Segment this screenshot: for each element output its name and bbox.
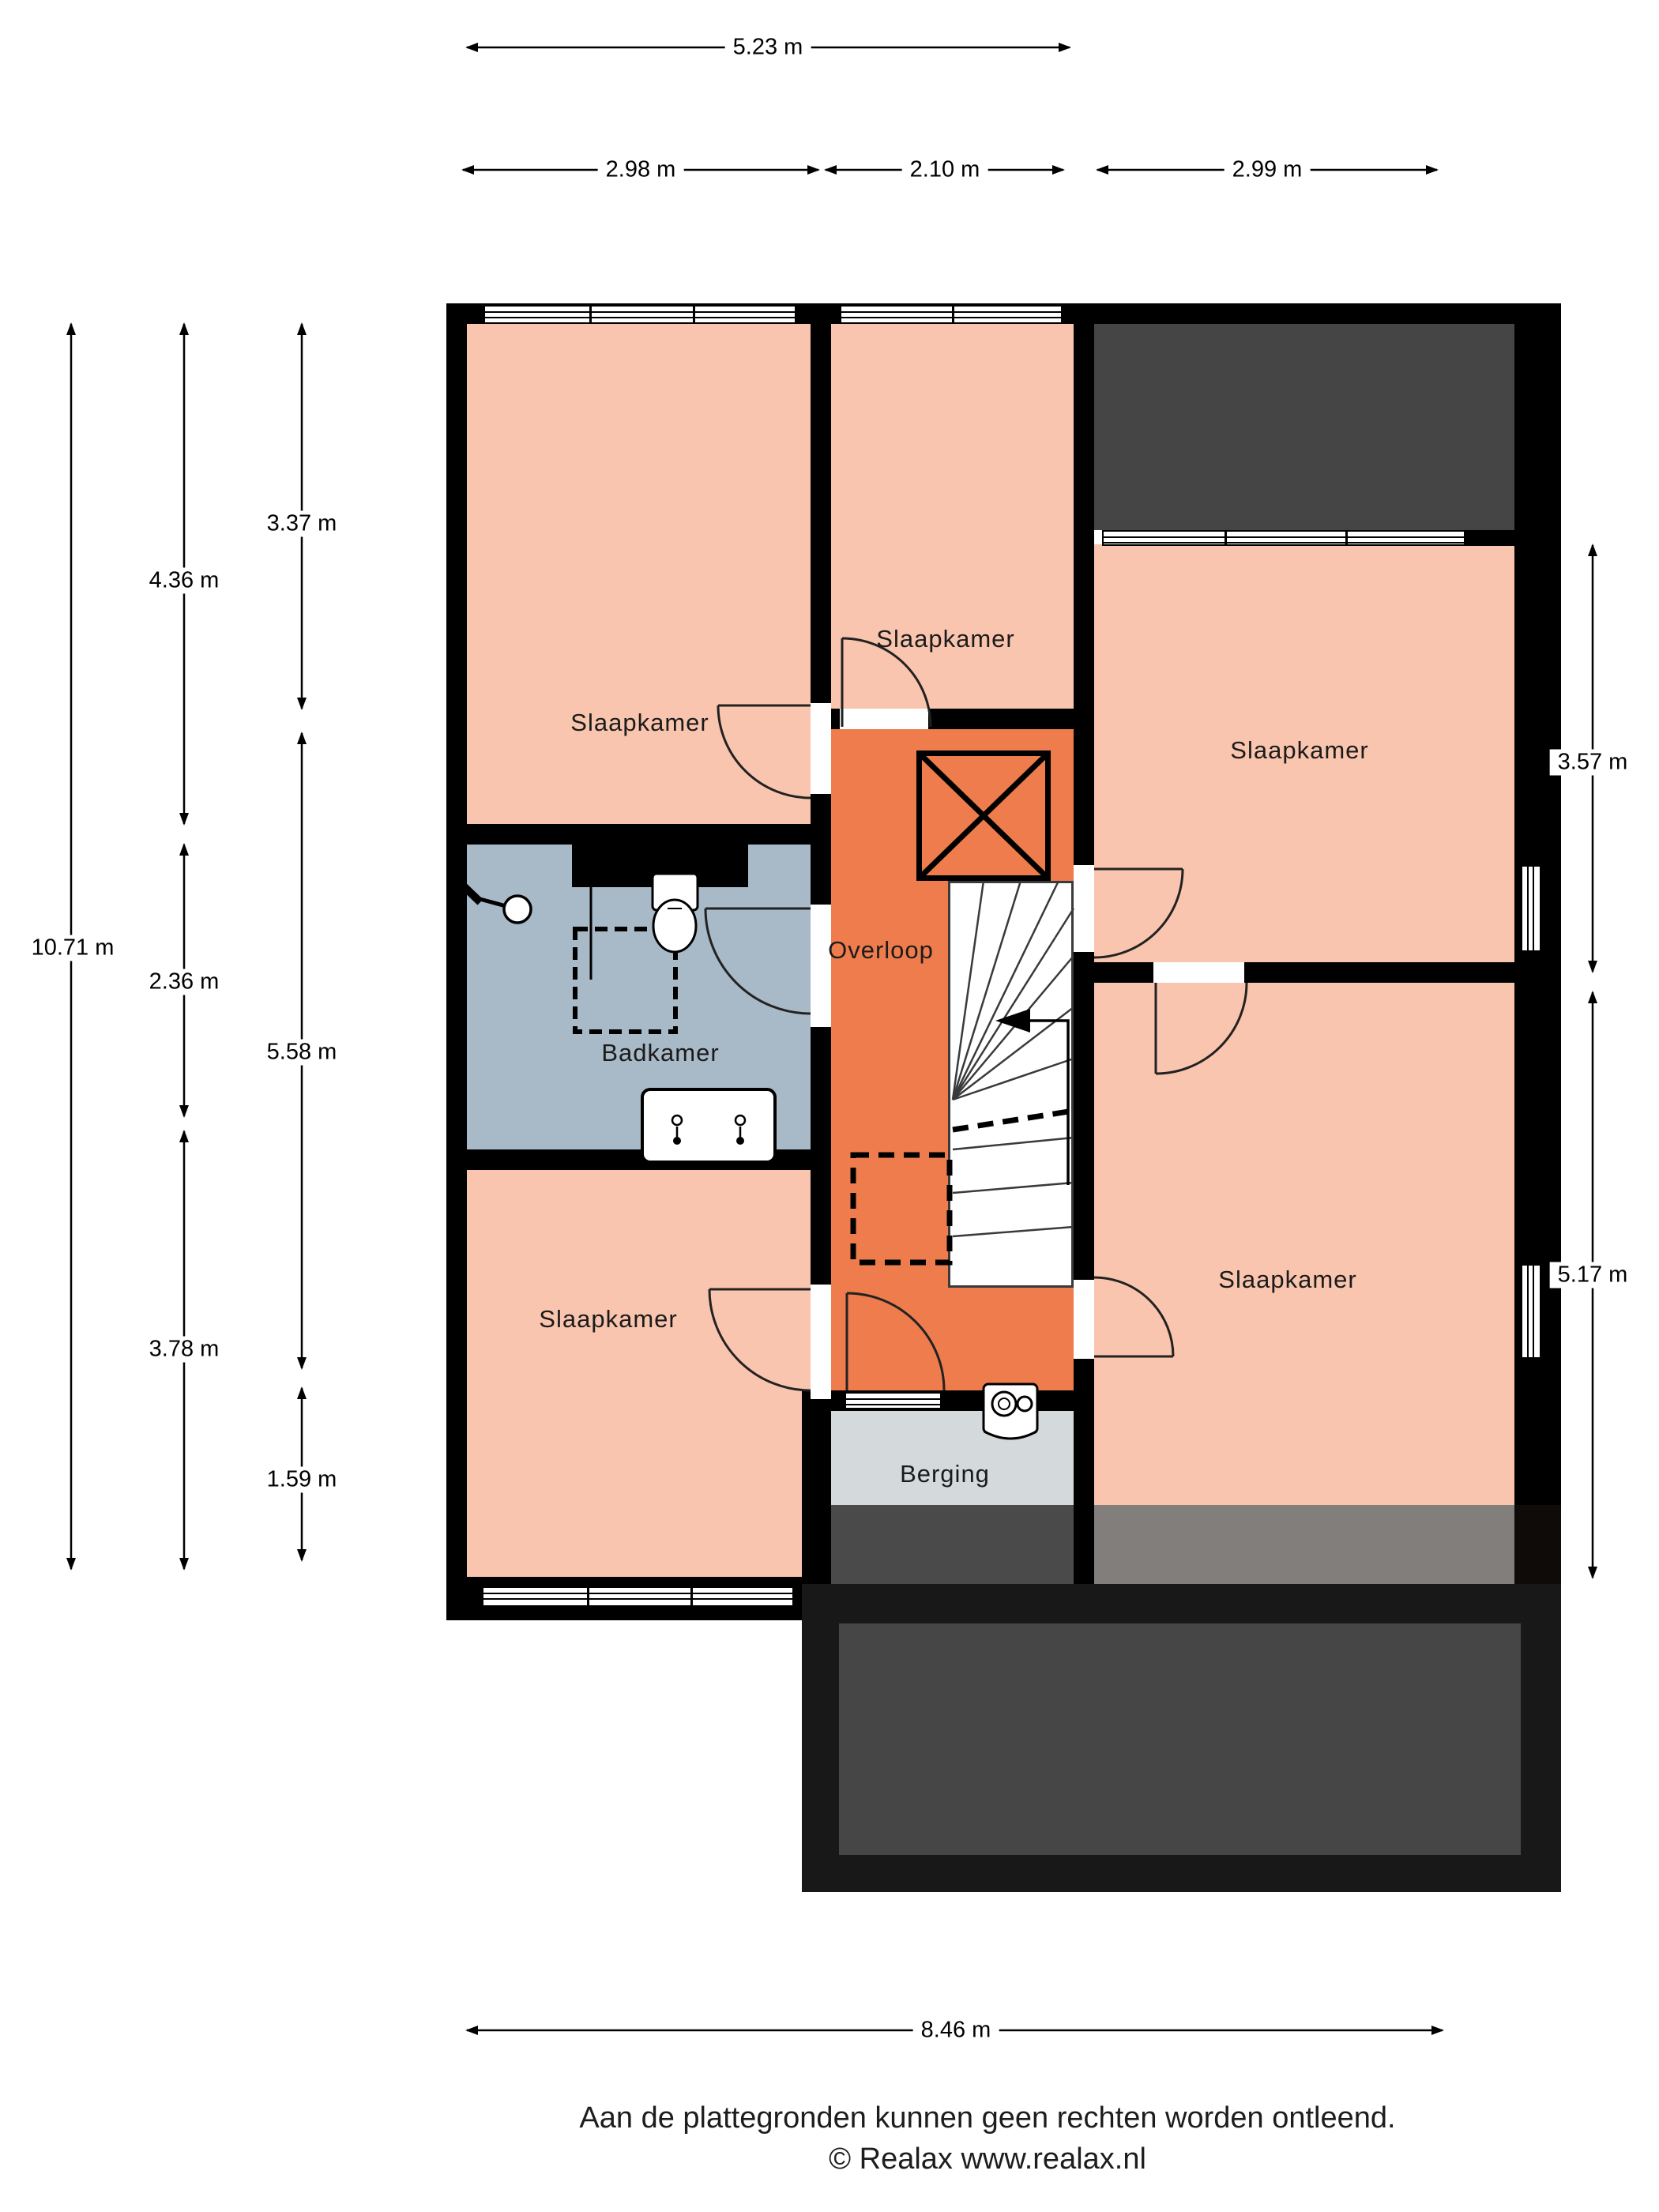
footer-disclaimer: Aan de plattegronden kunnen geen rechten… xyxy=(579,2101,1395,2135)
dim-left-inner-3: 1.59 m xyxy=(259,1467,345,1493)
dim-left-inner-1: 3.37 m xyxy=(259,511,345,537)
dim-left-outer-2: 2.36 m xyxy=(141,969,228,995)
room-label-bedroom-bottom-right: Slaapkamer xyxy=(1218,1266,1356,1294)
dim-left-overall: 10.71 m xyxy=(24,935,122,961)
room-label-storage: Berging xyxy=(900,1460,990,1488)
dim-left-outer-1: 4.36 m xyxy=(141,568,228,594)
sink-icon xyxy=(642,1089,775,1162)
boiler-icon xyxy=(984,1384,1037,1439)
footer-copyright: © Realax www.realax.nl xyxy=(829,2142,1146,2176)
toilet-icon xyxy=(653,874,698,952)
void-cross-icon xyxy=(919,753,1048,878)
door-symbol xyxy=(705,638,1247,1390)
dim-left-outer-3: 3.78 m xyxy=(141,1337,228,1363)
floorplan-page: Slaapkamer Slaapkamer Slaapkamer Overloo… xyxy=(0,0,1659,2212)
dim-top-1: 2.98 m xyxy=(598,157,684,183)
dim-right-2: 5.17 m xyxy=(1550,1262,1636,1288)
room-label-bedroom-bottom-left: Slaapkamer xyxy=(539,1305,677,1334)
dim-left-inner-2: 5.58 m xyxy=(259,1040,345,1066)
room-label-bedroom-top-left: Slaapkamer xyxy=(570,709,709,737)
shaft-dashed-box xyxy=(853,1155,950,1262)
linework-layer xyxy=(0,0,1659,2212)
room-label-bedroom-right: Slaapkamer xyxy=(1230,736,1368,765)
room-label-bedroom-top-middle: Slaapkamer xyxy=(876,625,1014,653)
shower-icon xyxy=(461,884,675,1032)
dim-top-3: 2.99 m xyxy=(1224,157,1311,183)
room-label-bathroom: Badkamer xyxy=(601,1039,719,1067)
dim-top-2: 2.10 m xyxy=(902,157,988,183)
dim-right-1: 3.57 m xyxy=(1550,750,1636,776)
stairs-icon xyxy=(953,881,1074,1236)
dim-top-overall: 5.23 m xyxy=(725,35,811,61)
room-label-landing: Overloop xyxy=(828,936,934,965)
dim-bottom: 8.46 m xyxy=(913,2018,999,2044)
